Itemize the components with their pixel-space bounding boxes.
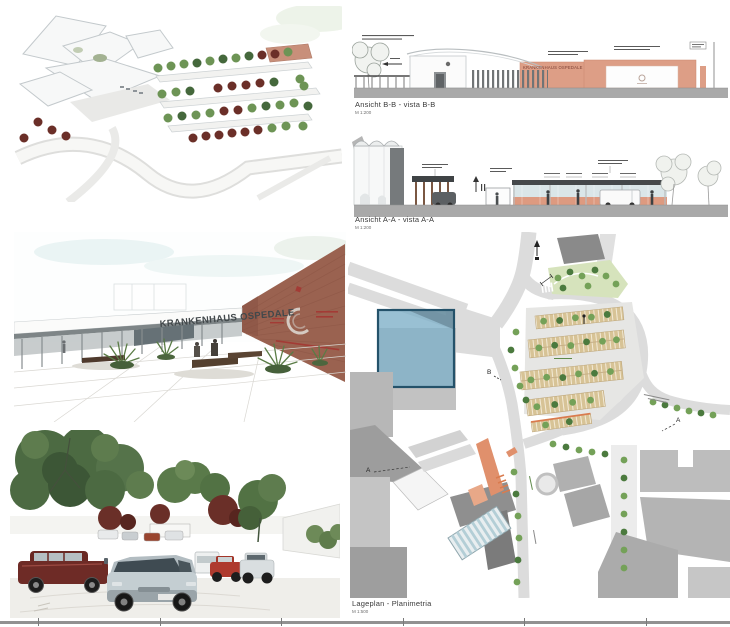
annotation-leaders [435, 166, 636, 177]
annotation-placeholder [422, 160, 636, 174]
elevation-aa-scale: M 1:200 [355, 225, 371, 230]
village-buildings [553, 450, 730, 598]
elevation-bb-scale: M 1:200 [355, 110, 371, 115]
roundabout [537, 474, 557, 494]
title-block-tick [38, 618, 39, 626]
svg-text:A: A [676, 417, 681, 424]
parking-lot-rendering [10, 430, 340, 618]
large-tree [10, 430, 154, 510]
title-block-tick [281, 618, 282, 626]
arched-building [352, 136, 404, 205]
elevation-aa-panel: Ansicht A-A - vista A-A M 1:200 [352, 126, 730, 232]
elevation-bb-panel: KRANKENHAUS OSPEDALE Ansicht B-B - vista… [352, 22, 730, 118]
section-marker-a-right: A [662, 417, 681, 431]
windfang-portal [486, 188, 510, 205]
svg-text:B: B [487, 369, 491, 376]
existing-building-dark [557, 234, 605, 264]
background-building [114, 284, 186, 310]
presentation-sheet: KRANKENHAUS OSPEDALE [0, 0, 730, 627]
elevation-aa-drawing [352, 126, 730, 218]
site-plan-scale: M 1:500 [352, 609, 368, 614]
entrance-rendering: KRANKENHAUS OSPEDALE [14, 232, 346, 422]
site-plan-panel: B A A Lageplan - Planimetria M 1:500 [348, 232, 730, 624]
up-arrow-icon [473, 176, 485, 192]
ambulance-van [600, 190, 640, 205]
entrance-canopy-elevation [412, 176, 456, 208]
aerial-view-rendering [8, 6, 342, 202]
aerial-trees-left [20, 118, 71, 143]
site-plan-drawing: B A A [348, 232, 730, 598]
entrance-image: KRANKENHAUS OSPEDALE [14, 232, 346, 422]
lawn [548, 260, 628, 298]
elevation-bb-title: Ansicht B-B - vista B-B [355, 100, 435, 109]
parking-image [10, 430, 340, 618]
direction-arrow-icon [382, 62, 402, 66]
parking-canopies [156, 62, 320, 132]
title-block-edge [0, 621, 730, 624]
portal-opening [606, 66, 678, 88]
aerial-view-image [8, 6, 342, 202]
elevation-aa-title: Ansicht A-A - vista A-A [355, 215, 434, 224]
pergola [354, 76, 412, 88]
svg-text:A: A [366, 467, 371, 474]
elevation-bb-drawing: KRANKENHAUS OSPEDALE [352, 22, 730, 100]
title-block-tick [403, 618, 404, 626]
title-block-tick [160, 618, 161, 626]
courtyard-green [93, 54, 107, 62]
title-block-tick [646, 618, 647, 626]
annotation-placeholder [362, 35, 660, 59]
elevation-sign-text: KRANKENHAUS OSPEDALE [523, 65, 583, 70]
title-block-tick [524, 618, 525, 626]
ground-band [354, 88, 728, 98]
site-plan-title: Lageplan - Planimetria [352, 599, 431, 608]
colonnade [470, 70, 548, 88]
sketch-tree [352, 42, 389, 88]
glass-pavilion [512, 180, 668, 208]
